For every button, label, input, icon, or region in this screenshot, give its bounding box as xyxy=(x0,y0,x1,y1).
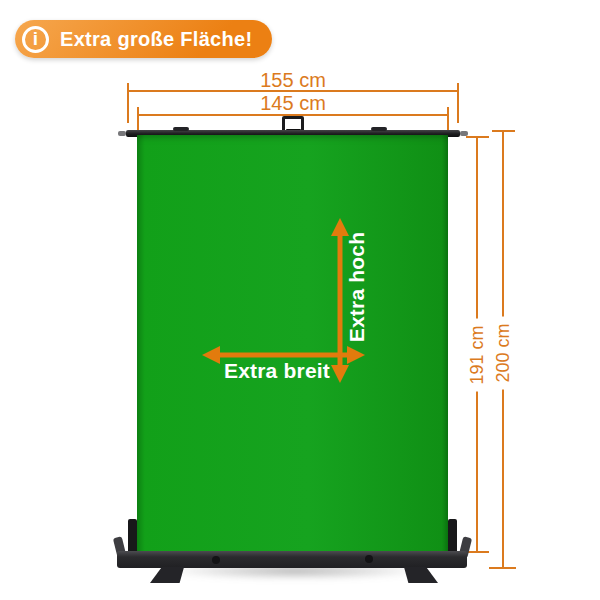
product-dimension-diagram: i Extra große Fläche! xyxy=(0,0,600,600)
outer-width-label: 155 cm xyxy=(260,69,326,92)
base-bracket-left xyxy=(128,519,137,553)
crossbar-clip-right xyxy=(371,127,387,131)
base-knob-right xyxy=(365,555,373,563)
base-bracket-right xyxy=(448,519,457,553)
info-icon-glyph: i xyxy=(33,29,38,48)
screen-height-label: 191 cm xyxy=(467,318,488,391)
total-height-label: 200 cm xyxy=(493,316,514,389)
base-knob-left xyxy=(212,556,220,564)
base-case xyxy=(117,551,467,568)
extra-width-annotation: Extra breit xyxy=(224,359,330,383)
green-screen-panel xyxy=(137,135,448,551)
info-badge: i Extra große Fläche! xyxy=(15,20,272,58)
crossbar-clip-left xyxy=(173,127,189,131)
extra-height-annotation: Extra hoch xyxy=(345,232,369,343)
inner-width-label: 145 cm xyxy=(260,92,326,115)
info-icon: i xyxy=(22,26,49,53)
crossbar-endcap-right xyxy=(460,131,468,136)
badge-label: Extra große Fläche! xyxy=(60,28,252,51)
crossbar-endcap-left xyxy=(118,131,126,136)
